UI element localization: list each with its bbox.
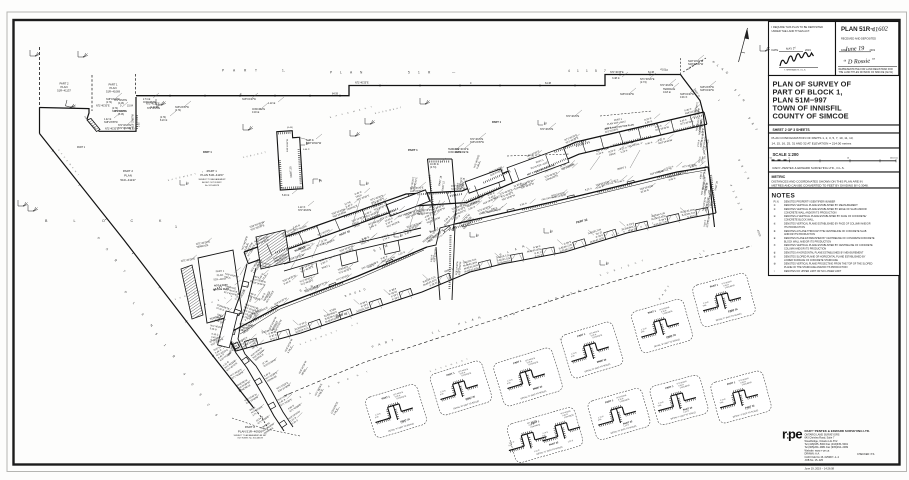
svg-text:4: 4 [568, 69, 570, 73]
svg-text:PLAN: PLAN [109, 86, 116, 90]
svg-text:20metres: 20metres [890, 156, 898, 159]
svg-text:I REQUIRE THIS PLAN TO BE DEPO: I REQUIRE THIS PLAN TO BE DEPOSITED [772, 25, 824, 29]
svg-text:5: 5 [408, 71, 410, 75]
svg-text:PART 2: PART 2 [123, 169, 134, 173]
svg-text:AS SET OUT IN INST.: AS SET OUT IN INST. [202, 181, 222, 184]
svg-text:0.46 ⑦: 0.46 ⑦ [680, 96, 687, 99]
svg-text:3.05: 3.05 [139, 122, 141, 127]
svg-text:P: P [330, 71, 332, 75]
svg-text:2.74 ⑧: 2.74 ⑧ [143, 98, 150, 101]
svg-text:84.59: 84.59 [332, 92, 339, 95]
svg-text:PART 1: PART 1 [492, 120, 502, 124]
svg-text:51R−41137: 51R−41137 [57, 89, 71, 93]
svg-text:(2.74): (2.74) [160, 117, 166, 119]
svg-text:P.I.N.: P.I.N. [774, 200, 780, 203]
svg-text:N18°19′40″W: N18°19′40″W [106, 99, 120, 101]
svg-text:pe: pe [788, 427, 802, 442]
svg-text:N18°24′35″W: N18°24′35″W [700, 87, 715, 89]
svg-text:5.49 ⑨: 5.49 ⑨ [282, 194, 289, 197]
svg-text:PLAN: PLAN [217, 274, 224, 277]
svg-text:AND/OR ITS PRODUCTION: AND/OR ITS PRODUCTION [784, 233, 815, 236]
svg-text:NOTES: NOTES [772, 193, 796, 200]
svg-text:1.22 ⑦: 1.22 ⑦ [298, 206, 305, 209]
svg-text:64.38: 64.38 [648, 71, 655, 74]
svg-text:5m: 5m [770, 157, 773, 159]
svg-text:1: 1 [175, 225, 177, 229]
svg-text:PART 2: PART 2 [59, 82, 69, 86]
svg-text:(0.46): (0.46) [118, 114, 124, 116]
svg-text:METRIC: METRIC [772, 175, 786, 179]
svg-text:METRES AND CAN BE CONVERTED TO: METRES AND CAN BE CONVERTED TO FEET BY D… [772, 183, 869, 187]
svg-text:5: 5 [595, 69, 597, 73]
svg-text:(2.74): (2.74) [430, 166, 436, 169]
svg-text:1,: 1, [282, 69, 285, 73]
svg-text:N18°24′35″W: N18°24′35″W [688, 62, 704, 66]
svg-text:N18°19′40″W: N18°19′40″W [620, 94, 635, 96]
svg-text:N71°40′20″E: N71°40′20″E [105, 128, 119, 131]
svg-text:0.46 ②: 0.46 ② [303, 148, 310, 151]
svg-text:0.18 ⑧: 0.18 ⑧ [663, 90, 672, 94]
svg-text:(0.46): (0.46) [287, 127, 293, 129]
svg-text:51R−41069: 51R−41069 [106, 90, 120, 94]
svg-text:T: T [255, 69, 257, 73]
svg-text:COUNTY OF SIMCOE: COUNTY OF SIMCOE [773, 112, 849, 121]
svg-text:June 19, 2019 − 14:26:08: June 19, 2019 − 14:26:08 [805, 466, 835, 470]
svg-text:PLAN 51R−40926: PLAN 51R−40926 [238, 430, 263, 434]
svg-text:DENOTES VERTICAL PLANE ESTABLI: DENOTES VERTICAL PLANE ESTABLISHED BY ME… [784, 204, 858, 207]
svg-text:(2.74): (2.74) [175, 110, 181, 112]
svg-text:1: 1 [586, 69, 588, 73]
svg-text:N18°24′35″W: N18°24′35″W [175, 107, 190, 109]
svg-text:PART 1: PART 1 [108, 83, 118, 87]
svg-text:0: 0 [789, 157, 790, 159]
svg-text:N71°40′20″E: N71°40′20″E [96, 105, 110, 108]
svg-text:PLAN 51R−: PLAN 51R− [841, 26, 874, 33]
svg-text:P: P [222, 69, 224, 73]
svg-text:SHEET 2 OF 3 SHEETS: SHEET 2 OF 3 SHEETS [773, 128, 811, 132]
svg-text:No. SC1446578: No. SC1446578 [205, 185, 220, 187]
svg-text:N71°40′20″E: N71°40′20″E [118, 125, 131, 127]
svg-text:DENOTES PROPERTY IDENTIFIER NU: DENOTES PROPERTY IDENTIFIER NUMBER [784, 200, 835, 203]
svg-text:CONCRETE: CONCRETE [455, 151, 469, 154]
svg-text:CONCRETE WALL AND/OR ITS PRODU: CONCRETE WALL AND/OR ITS PRODUCTION [784, 211, 837, 214]
svg-text:UNDER THE LAND TITLES ACT.: UNDER THE LAND TITLES ACT. [772, 29, 811, 33]
svg-text:DENOTES A HORIZONTAL PLANE EST: DENOTES A HORIZONTAL PLANE ESTABLISHED B… [784, 252, 864, 255]
svg-text:(2.74): (2.74) [106, 102, 112, 104]
svg-text:PLAN 51R−41157: PLAN 51R−41157 [200, 173, 224, 177]
svg-text:N71°40′25″E: N71°40′25″E [355, 82, 369, 85]
svg-text:L: L [340, 71, 342, 75]
svg-text:T. SHERBAKOV, O.L.S.: T. SHERBAKOV, O.L.S. [784, 68, 806, 71]
svg-text:PLAN: PLAN [124, 174, 132, 178]
svg-text:7: 7 [604, 69, 606, 73]
svg-text:N71°40′20″E: N71°40′20″E [660, 85, 674, 87]
svg-text:CHECKED: P.S.: CHECKED: P.S. [857, 453, 875, 456]
svg-text:SUBJECT TO AN EASEMENT: SUBJECT TO AN EASEMENT [198, 178, 226, 181]
svg-text:0.18 ⑧: 0.18 ⑧ [252, 111, 259, 114]
svg-text:PART 1: PART 1 [203, 151, 212, 154]
svg-text:1.22 ⑧: 1.22 ⑧ [268, 102, 275, 105]
svg-text:C: C [131, 219, 134, 223]
svg-text:PART 8: PART 8 [245, 425, 256, 429]
svg-text:SCALE 1:200: SCALE 1:200 [773, 152, 800, 157]
svg-text:41602: 41602 [872, 25, 889, 33]
svg-text:PART 1: PART 1 [77, 146, 86, 149]
svg-text:N71°40′25″E: N71°40′25″E [566, 116, 580, 118]
svg-text:RECEIVED AND DEPOSITED: RECEIVED AND DEPOSITED [841, 36, 876, 40]
svg-text:(0.46): (0.46) [118, 103, 124, 105]
svg-text:N71°40′25″E: N71°40′25″E [470, 139, 484, 141]
svg-text:COLUMN AND/OR ITS PRODUCTION: COLUMN AND/OR ITS PRODUCTION [784, 248, 826, 251]
svg-text:3.48 ④: 3.48 ④ [612, 76, 621, 80]
svg-text:DENOTES NO UPPER LIMIT OR NO L: DENOTES NO UPPER LIMIT OR NO LOWER LIMIT [784, 270, 842, 273]
svg-text:N71°40′25″E: N71°40′25″E [540, 129, 554, 131]
svg-text:15.04: 15.04 [127, 105, 134, 108]
svg-text:DATE: DATE [772, 48, 779, 52]
svg-text:LOWER SURFACE OF CONCRETE STAI: LOWER SURFACE OF CONCRETE STAIRCASE [784, 259, 838, 262]
svg-text:8.23 ⑨: 8.23 ⑨ [160, 119, 167, 122]
svg-text:N18°19′40″W: N18°19′40″W [680, 94, 695, 96]
svg-text:(2.74): (2.74) [112, 108, 118, 110]
svg-text:1: 1 [577, 69, 579, 73]
svg-text:N18°19′40″W: N18°19′40″W [700, 90, 715, 92]
svg-text:PART 20: PART 20 [288, 166, 293, 178]
svg-text:2019: 2019 [805, 48, 811, 52]
svg-text:N18°24′35″W: N18°24′35″W [104, 122, 118, 124]
svg-text:CONCRETE BLOCK WALL: CONCRETE BLOCK WALL [784, 219, 814, 222]
svg-text:PART 1: PART 1 [216, 270, 225, 273]
svg-text:ITS PRODUCTION: ITS PRODUCTION [784, 226, 805, 229]
svg-text:10: 10 [847, 157, 849, 159]
svg-text:64.38: 64.38 [545, 82, 552, 85]
svg-text:1.22 ⑨: 1.22 ⑨ [104, 118, 111, 121]
svg-text:N18°19′40″W: N18°19′40″W [306, 141, 322, 145]
svg-text:N71°40′20″E: N71°40′20″E [298, 210, 312, 212]
svg-text:O: O [102, 219, 105, 223]
svg-text:PLANE OF THE STAIRCASE AND/OR: PLANE OF THE STAIRCASE AND/OR ITS PRODUC… [784, 266, 848, 269]
svg-text:1: 1 [418, 71, 420, 75]
svg-text:N18°19′40″W: N18°19′40″W [287, 138, 289, 152]
svg-text:THE LAND TITLES DIVISION OF SI: THE LAND TITLES DIVISION OF SIMCOE (No.5… [839, 71, 894, 74]
svg-text:N71°40′20″E: N71°40′20″E [118, 128, 131, 130]
svg-text:JOB No. 15−025: JOB No. 15−025 [805, 459, 824, 462]
svg-text:N18°19′40″W: N18°19′40″W [112, 111, 126, 113]
svg-text:N18°19′40″W: N18°19′40″W [242, 99, 257, 101]
svg-text:N18°24′35″W: N18°24′35″W [470, 142, 485, 144]
svg-text:CONCRETE: CONCRETE [252, 109, 266, 111]
svg-text:PART 1: PART 1 [408, 148, 418, 152]
svg-text:PLAN CONFIGURATION OF PARTS 1,: PLAN CONFIGURATION OF PARTS 1, 2, 3, 5, … [772, 136, 854, 140]
svg-text:L: L [74, 219, 76, 223]
svg-text:N71°40′25″E: N71°40′25″E [610, 71, 624, 74]
svg-text:CONCRETE: CONCRETE [143, 102, 156, 104]
svg-text:N71°40′25″E: N71°40′25″E [147, 108, 160, 110]
svg-text:RADY−PENTEK & EDWARD SURVEYING: RADY−PENTEK & EDWARD SURVEYING LTD., O.L… [773, 166, 845, 170]
svg-text:14, 15, 16, 25, 31 AND 32 AT E: 14, 15, 16, 25, 31 AND 32 AT ELEVATION =… [772, 142, 852, 146]
svg-text:BLOCK WALL AND/OR ITS PRODUCTI: BLOCK WALL AND/OR ITS PRODUCTION [784, 240, 831, 243]
svg-text:PLAN: PLAN [60, 85, 67, 89]
svg-text:51R−41137: 51R−41137 [120, 178, 136, 182]
svg-text:OUT IN INST. No. SC1446578: OUT IN INST. No. SC1446578 [237, 437, 263, 439]
svg-text:2019: 2019 [870, 49, 876, 52]
svg-text:(2.74): (2.74) [640, 80, 647, 84]
svg-text:N18°19′40″W: N18°19′40″W [133, 114, 135, 128]
svg-text:↕: ↕ [774, 270, 775, 273]
